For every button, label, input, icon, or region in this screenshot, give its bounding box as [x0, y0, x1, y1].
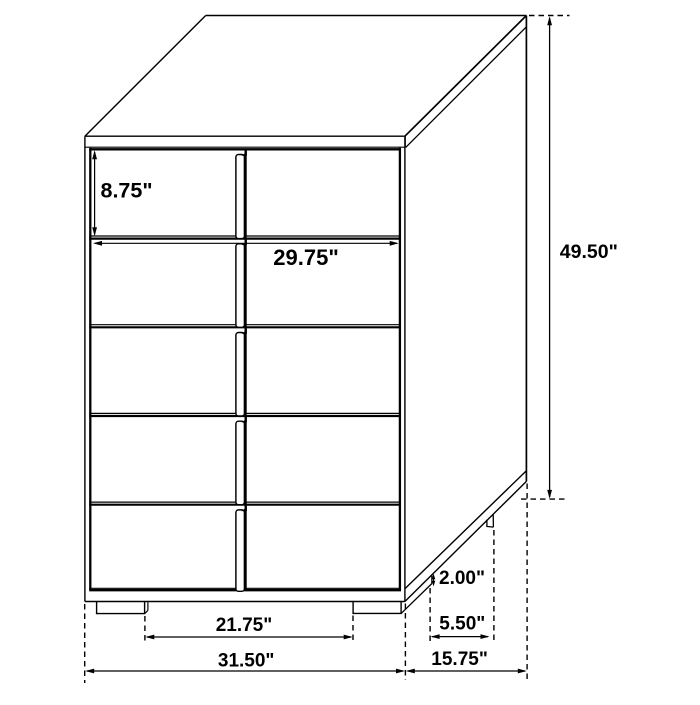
- svg-text:2.00": 2.00": [439, 568, 485, 589]
- svg-text:8.75": 8.75": [101, 179, 153, 203]
- svg-text:31.50": 31.50": [218, 651, 275, 672]
- svg-text:49.50": 49.50": [560, 241, 618, 263]
- svg-text:5.50": 5.50": [439, 614, 485, 635]
- svg-text:15.75": 15.75": [431, 649, 488, 670]
- svg-text:29.75": 29.75": [273, 245, 338, 270]
- svg-text:21.75": 21.75": [216, 615, 273, 636]
